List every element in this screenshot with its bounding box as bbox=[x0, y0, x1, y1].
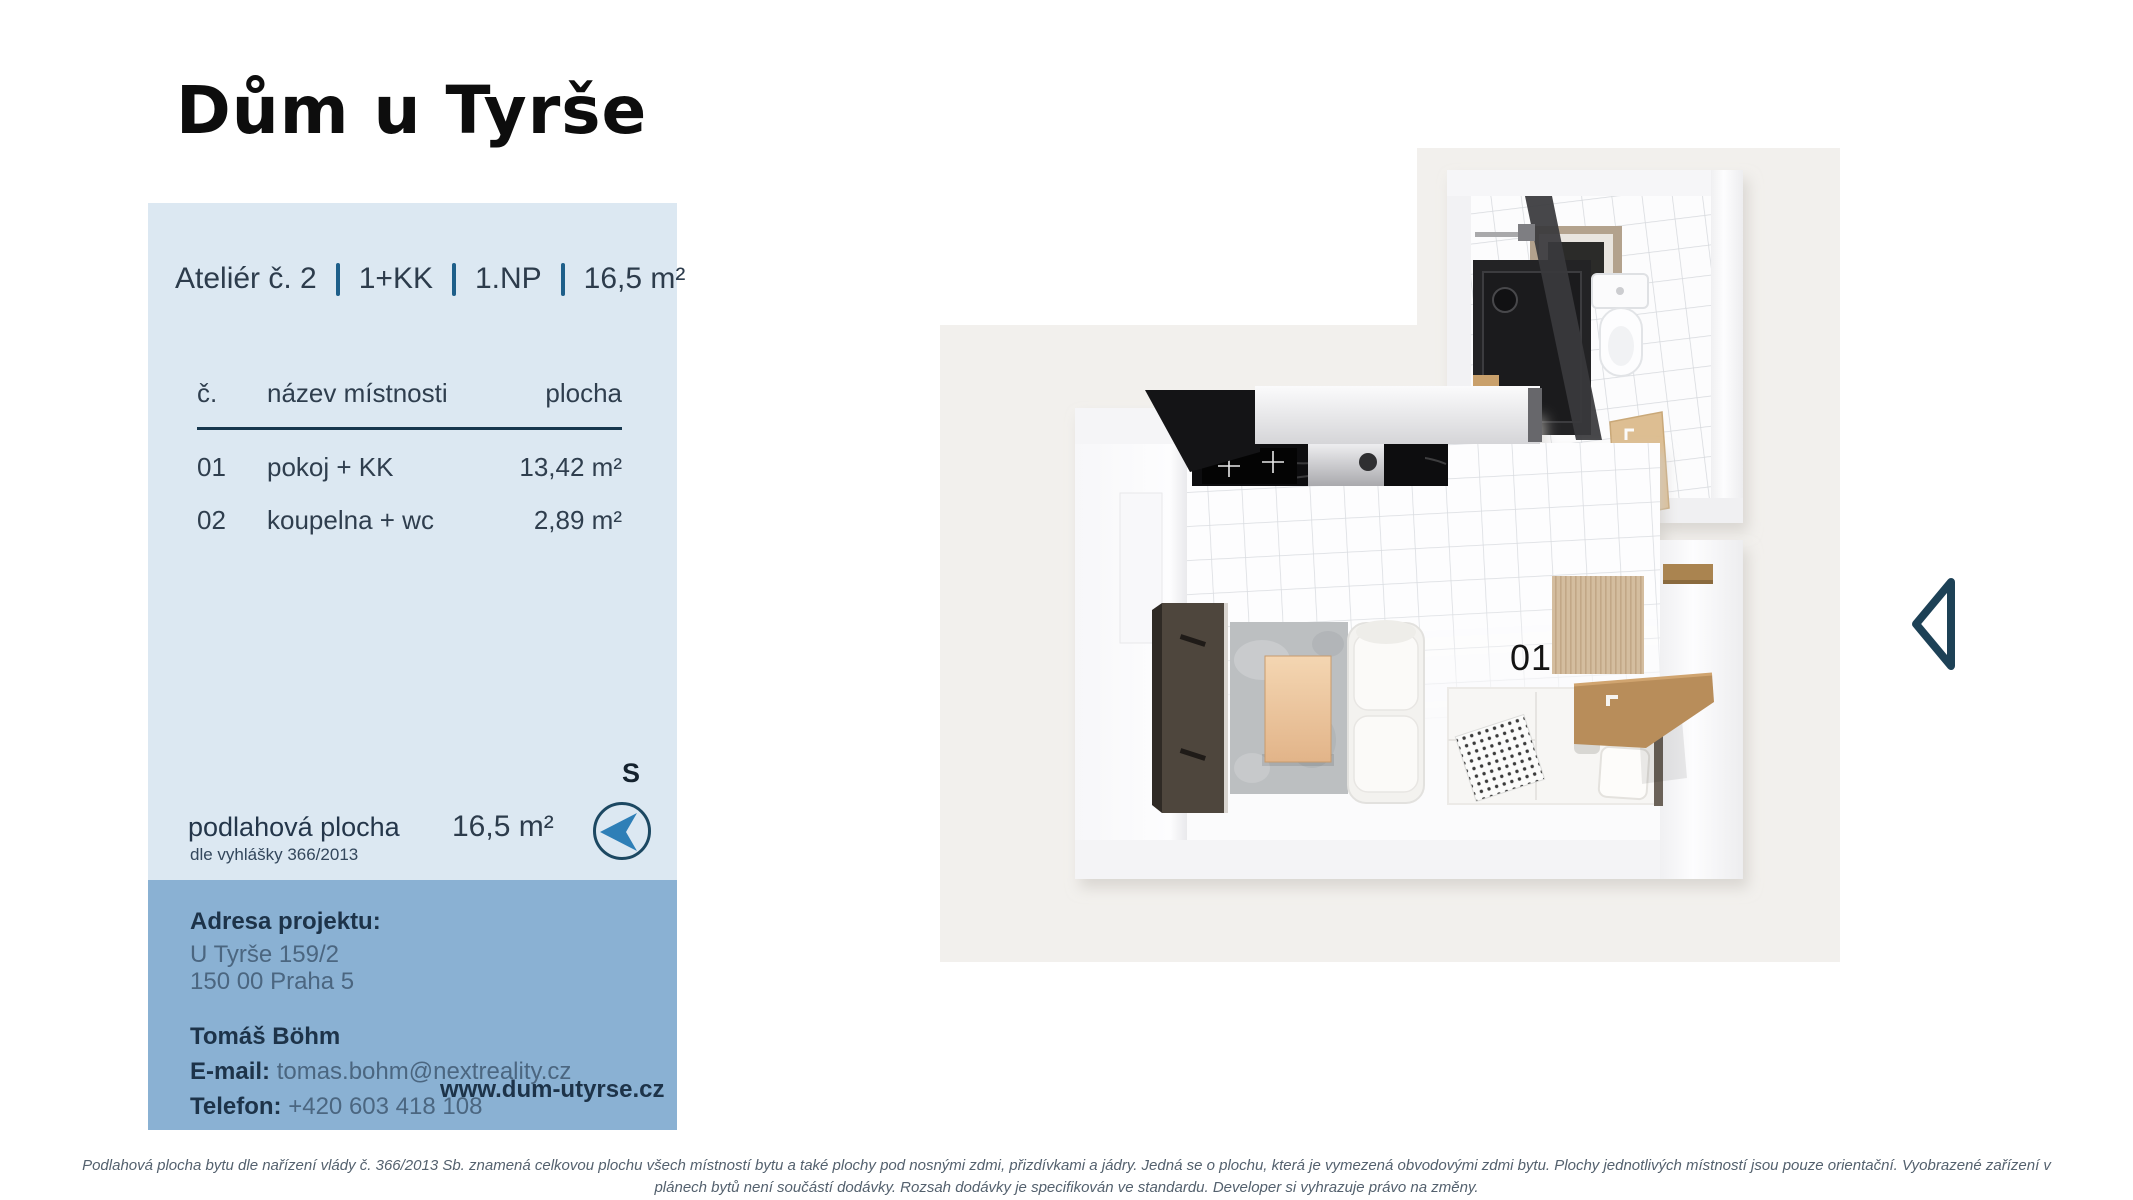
email-label: E-mail: bbox=[190, 1058, 270, 1085]
sofa bbox=[1348, 620, 1424, 803]
compass-icon bbox=[593, 802, 651, 860]
table-row: 01 pokoj + KK 13,42 m² bbox=[197, 452, 622, 483]
separator bbox=[452, 263, 456, 296]
floor-area-value: 16,5 m² bbox=[452, 810, 554, 844]
compass-north-label: S bbox=[622, 758, 640, 789]
col-number: č. bbox=[197, 378, 267, 409]
unit-summary: Ateliér č. 2 1+KK 1.NP 16,5 m² bbox=[175, 262, 685, 296]
wardrobe bbox=[1152, 603, 1228, 813]
contact-person: Tomáš Böhm bbox=[190, 1023, 571, 1050]
separator bbox=[561, 263, 565, 296]
coffee-table bbox=[1262, 656, 1334, 766]
room-area: 13,42 m² bbox=[519, 452, 622, 483]
wall-shelf bbox=[1663, 564, 1713, 584]
room-01-label: 01 bbox=[1510, 637, 1552, 678]
disclaimer-line1: Podlahová plocha bytu dle nařízení vlády… bbox=[0, 1155, 2133, 1177]
room-table: č. název místnosti plocha 01 pokoj + KK … bbox=[197, 378, 622, 536]
room-number: 01 bbox=[197, 452, 267, 483]
table-rule bbox=[197, 427, 622, 430]
jute-rug bbox=[1552, 576, 1644, 674]
address-line2: 150 00 Praha 5 bbox=[190, 968, 571, 995]
floor-area-label: podlahová plocha bbox=[188, 812, 400, 843]
phone-label: Telefon: bbox=[190, 1093, 282, 1120]
page-title: Dům u Tyrše bbox=[176, 72, 647, 149]
compass-circle bbox=[593, 802, 651, 860]
toilet bbox=[1592, 274, 1648, 376]
room-name: koupelna + wc bbox=[267, 505, 534, 536]
address-line1: U Tyrše 159/2 bbox=[190, 941, 571, 968]
compass-needle-icon bbox=[597, 806, 647, 856]
address-label: Adresa projektu: bbox=[190, 908, 571, 935]
room-area: 2,89 m² bbox=[534, 505, 622, 536]
floor-plan: 02 bbox=[940, 140, 1840, 962]
table-row: 02 koupelna + wc 2,89 m² bbox=[197, 505, 622, 536]
unit-name: Ateliér č. 2 bbox=[175, 262, 317, 296]
separator bbox=[336, 263, 340, 296]
previous-arrow-icon[interactable] bbox=[1906, 574, 1958, 674]
unit-floor: 1.NP bbox=[475, 262, 542, 296]
room-name: pokoj + KK bbox=[267, 452, 519, 483]
legal-disclaimer: Podlahová plocha bytu dle nařízení vlády… bbox=[0, 1155, 2133, 1199]
info-panel bbox=[148, 203, 677, 880]
room-table-header: č. název místnosti plocha bbox=[197, 378, 622, 409]
unit-area: 16,5 m² bbox=[584, 262, 686, 296]
range-hood bbox=[1255, 386, 1540, 444]
col-area: plocha bbox=[545, 378, 622, 409]
brochure-page: Dům u Tyrše Ateliér č. 2 1+KK 1.NP 16,5 … bbox=[0, 0, 2133, 1200]
room-number: 02 bbox=[197, 505, 267, 536]
col-name: název místnosti bbox=[267, 378, 545, 409]
disclaimer-line2: plánech bytů není součástí dodávky. Rozs… bbox=[0, 1177, 2133, 1199]
website-link[interactable]: www.dum-utyrse.cz bbox=[440, 1076, 664, 1104]
unit-layout: 1+KK bbox=[359, 262, 433, 296]
floor-area-note: dle vyhlášky 366/2013 bbox=[190, 845, 358, 865]
